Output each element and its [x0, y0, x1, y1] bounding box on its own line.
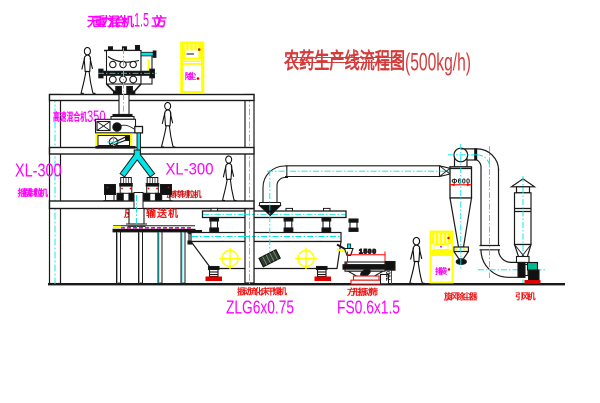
svg-text:XL-300: XL-300 [15, 160, 62, 181]
svg-text:农药生产线流程图: 农药生产线流程图 [283, 49, 405, 74]
svg-text:除尘: 除尘 [185, 71, 197, 81]
svg-text:XL-300: XL-300 [166, 161, 214, 179]
svg-text:无重力混合机: 无重力混合机 [86, 14, 134, 29]
svg-text:方形振动筛: 方形振动筛 [347, 287, 378, 297]
svg-text:700: 700 [387, 270, 393, 281]
svg-text:高速混合机: 高速混合机 [53, 110, 87, 124]
svg-text:1.5: 1.5 [134, 11, 149, 32]
svg-text:摇摆制粒机: 摇摆制粒机 [18, 187, 49, 198]
svg-text:1500: 1500 [359, 249, 376, 256]
svg-text:(500kg/h): (500kg/h) [405, 49, 471, 77]
svg-text:旋风除尘器: 旋风除尘器 [443, 292, 478, 302]
svg-text:FS0.6x1.5: FS0.6x1.5 [337, 298, 400, 318]
svg-text:引风机: 引风机 [515, 292, 536, 302]
svg-text:ZLG6x0.75: ZLG6x0.75 [226, 298, 294, 318]
svg-text:立方: 立方 [151, 14, 167, 29]
svg-text:振动流化床干燥机: 振动流化床干燥机 [237, 287, 287, 297]
svg-text:排袋: 排袋 [435, 266, 448, 276]
